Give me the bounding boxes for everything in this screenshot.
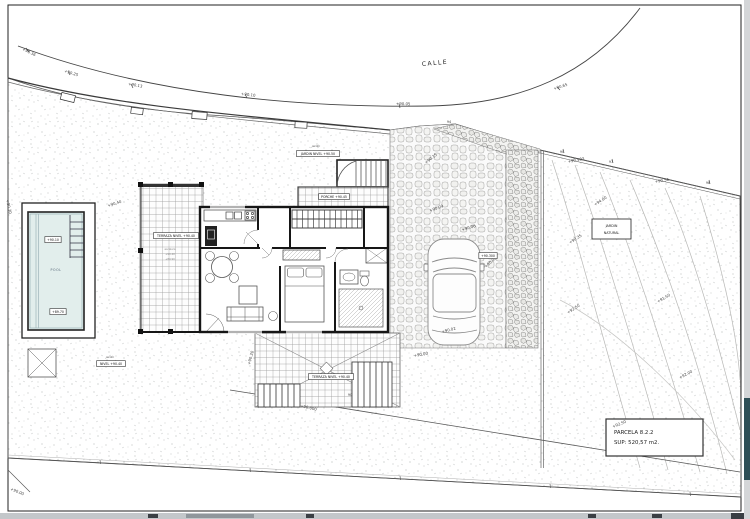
boundary-number: 94 (447, 120, 451, 124)
area-label: TERRAZA NIVEL +90.40 (311, 375, 350, 379)
scrollbar-thumb[interactable] (744, 398, 750, 480)
note-label: escalera (165, 247, 176, 251)
area-label: TERRAZA NIVEL +90.40 (156, 234, 195, 238)
natural-garden-label: JARDIN NATURAL (592, 219, 631, 239)
area-label: JARDIN NIVEL +90.50 (300, 152, 335, 156)
driveway (390, 124, 506, 348)
terrace-bottom (255, 333, 400, 407)
area-label: NIVEL +90.40 (100, 362, 122, 366)
shower (339, 289, 383, 327)
area-label: +90.10 (47, 238, 59, 242)
fridge (205, 226, 217, 246)
note-label: +89.90 (165, 257, 175, 261)
boundary-number: 98 (706, 181, 710, 185)
area-caption: jardín (105, 355, 115, 359)
svg-text:JARDIN: JARDIN (605, 224, 618, 228)
bottom-ui-mark (306, 514, 314, 518)
bottom-ui-mark (148, 514, 158, 518)
entry-stairs (337, 160, 388, 187)
bottom-ui-strip (0, 513, 750, 519)
parcel-area: SUP: 520,57 m2. (614, 440, 659, 446)
boundary-number: 97 (609, 160, 613, 164)
site-plan-drawing: CALLE (0, 0, 750, 519)
area-caption: jardín (311, 144, 321, 148)
area-label: +89.70 (52, 310, 64, 314)
bottom-ui-mark (588, 514, 596, 518)
bottom-ui-mark (652, 514, 662, 518)
boundary-number: 90 (560, 150, 564, 154)
bottom-ui-mark (186, 514, 254, 518)
note-label: +90.40 (165, 252, 175, 256)
svg-text:NATURAL: NATURAL (604, 231, 620, 235)
area-label: PORCHE +90.45 (321, 195, 347, 199)
terrace-stairs-right (352, 362, 392, 407)
elevation-label: +90.05 (396, 101, 411, 106)
terrace-stairs-left (258, 384, 300, 407)
pool-skimmer (28, 349, 56, 377)
parcel-id: PARCELA 8.2.2 (614, 430, 653, 436)
wardrobe (283, 250, 320, 260)
pool-label: POOL (50, 268, 61, 272)
area-label: +90.300 (481, 254, 495, 258)
boundary-number: 90 (348, 393, 352, 397)
